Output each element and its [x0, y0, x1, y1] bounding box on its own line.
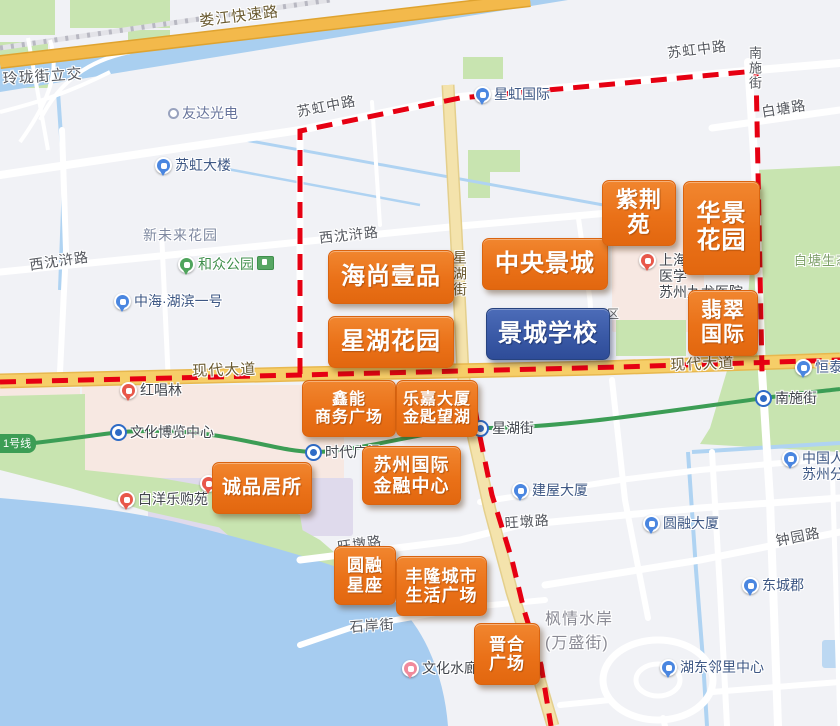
area-label-xinweilai-garden: 新未来花园: [143, 225, 218, 245]
estate-label-text: 诚品居所: [222, 477, 302, 498]
area-label-line2: (万盛街): [545, 629, 613, 653]
school-label-jingcheng-school: 景城学校: [486, 308, 610, 360]
poi-hezhong-park[interactable]: 和众公园: [178, 256, 274, 273]
building-pin-icon: [795, 359, 812, 376]
road-label-shian-street: 石岸街: [349, 614, 395, 637]
estate-label-text2: 生活广场: [406, 586, 478, 605]
metro-station-icon: [305, 444, 322, 461]
poi-hongchanglin[interactable]: 红唱林: [120, 382, 182, 399]
poi-suhong-tower[interactable]: 苏虹大楼: [155, 157, 231, 174]
poi-yuanrong-tower[interactable]: 圆融大厦: [643, 515, 719, 532]
park-badge-icon: [257, 256, 274, 270]
building-pin-icon: [782, 450, 799, 467]
estate-label-text: 苏州国际: [374, 455, 450, 475]
road-label-wangdun-road-east: 旺墩路: [504, 510, 550, 533]
poi-jianwu-tower[interactable]: 建屋大厦: [512, 482, 588, 499]
building-pin-icon: [660, 659, 677, 676]
station-label: 南施街: [775, 390, 817, 406]
estate-label-text2: 金匙望湖: [403, 409, 471, 427]
estate-label-text: 丰隆城市: [406, 567, 478, 586]
poi-label: 建屋大厦: [532, 482, 588, 498]
poi-youda-optoelectronics[interactable]: 友达光电: [168, 105, 238, 121]
metro-station-icon: [755, 390, 772, 407]
poi-label: 红唱林: [140, 382, 182, 398]
poi-china-life-suzhou[interactable]: 中国人寿 苏州分公司: [782, 450, 840, 482]
estate-label-text: 中央景城: [495, 251, 595, 278]
estate-label-text: 海尚壹品: [341, 264, 441, 291]
estate-label-xinghu-garden: 星湖花园: [328, 316, 454, 368]
area-label-line1: 枫情水岸: [545, 605, 613, 629]
estate-label-chengpin-jusuo: 诚品居所: [212, 462, 312, 514]
poi-hengtai[interactable]: 恒泰: [795, 359, 840, 376]
estate-label-text: 圆融: [347, 556, 383, 575]
estate-label-text2: 金融中心: [374, 476, 450, 496]
estate-label-zijing-yuan: 紫荆 苑: [602, 180, 676, 246]
estate-label-text: 晋合: [489, 635, 525, 654]
estate-label-text2: 花园: [697, 228, 747, 255]
estate-label-text2: 国际: [701, 323, 745, 347]
estate-label-xinneng-business-plaza: 鑫能 商务广场: [302, 380, 396, 437]
estate-label-yuanrong-xingzuo: 圆融 星座: [334, 546, 396, 605]
poi-pin-icon: [402, 660, 419, 677]
station-label: 文化博览中心: [130, 424, 214, 440]
poi-station-wenhua-bolan-center[interactable]: 文化博览中心: [110, 424, 214, 441]
estate-label-text: 星湖花园: [341, 329, 441, 356]
estate-label-fenglong-city-life-plaza: 丰隆城市 生活广场: [396, 556, 487, 616]
estate-label-text2: 苑: [627, 213, 650, 238]
building-pin-icon: [643, 515, 660, 532]
estate-label-text2: 广场: [489, 654, 525, 673]
hospital-pin-icon: [639, 252, 656, 269]
estate-label-suzhou-ifc: 苏州国际 金融中心: [362, 446, 461, 505]
poi-label: 苏虹大楼: [175, 157, 231, 173]
poi-hudong-neighborhood-center[interactable]: 湖东邻里中心: [660, 659, 764, 676]
building-pin-icon: [512, 482, 529, 499]
metro-line-badge: 1号线: [0, 434, 36, 453]
poi-dot-icon: [168, 108, 179, 119]
building-pin-icon: [114, 293, 131, 310]
estate-label-text: 翡翠: [701, 299, 745, 323]
park-pin-icon: [178, 256, 195, 273]
estate-label-text: 华景: [697, 201, 747, 228]
area-label-fengqing-shuian: 枫情水岸 (万盛街): [545, 605, 613, 653]
metro-station-icon: [110, 424, 127, 441]
poi-dongchengjun[interactable]: 东城郡: [742, 577, 804, 594]
poi-xinghong-international[interactable]: 星虹国际: [474, 86, 550, 103]
estate-label-text2: 商务广场: [315, 409, 383, 427]
estate-label-text2: 星座: [347, 576, 383, 595]
estate-label-haishang-yipin: 海尚壹品: [328, 250, 454, 304]
estate-label-text: 紫荆: [616, 188, 662, 213]
poi-pin-icon: [118, 491, 135, 508]
poi-station-nanshi-street[interactable]: 南施街: [755, 390, 817, 407]
estate-label-text: 乐嘉大厦: [403, 391, 471, 409]
poi-station-xinghu-street[interactable]: 星湖街: [472, 420, 534, 437]
poi-label: 和众公园: [198, 256, 274, 272]
poi-label-line2: 苏州分公司: [802, 466, 840, 482]
poi-label: 友达光电: [182, 105, 238, 121]
building-pin-icon: [474, 86, 491, 103]
estate-label-zhongyang-jingcheng: 中央景城: [482, 238, 608, 290]
estate-label-text: 鑫能: [332, 391, 366, 409]
poi-pin-icon: [120, 382, 137, 399]
poi-label: 文化水廊: [422, 660, 478, 676]
map-canvas[interactable]: 娄江快速路 玲珑街立交 苏虹中路 苏虹中路 南施街 白塘路 西沈浒路 西沈浒路 …: [0, 0, 840, 726]
building-pin-icon: [155, 157, 172, 174]
road-label-xiandai-avenue-west: 现代大道: [192, 358, 257, 381]
poi-baiyang-legou-yuan[interactable]: 白洋乐购苑: [118, 491, 208, 508]
road-label-nanshi-street: 南施街: [745, 46, 764, 91]
poi-label: 白洋乐购苑: [138, 491, 208, 507]
estate-label-feicui-international: 翡翠 国际: [688, 290, 758, 356]
station-label: 星湖街: [492, 420, 534, 436]
poi-label: 星虹国际: [494, 86, 550, 102]
estate-label-lejia-tower-jinshi-wanghu: 乐嘉大厦 金匙望湖: [396, 380, 478, 437]
school-label-text: 景城学校: [498, 321, 598, 348]
poi-label: 恒泰: [815, 359, 840, 375]
estate-label-huajing-garden: 华景 花园: [683, 181, 760, 275]
area-label-baitang-eco-park: 白塘生态园: [794, 250, 840, 269]
poi-label: 湖东邻里中心: [680, 659, 764, 675]
poi-label: 圆融大厦: [663, 515, 719, 531]
poi-label-text: 和众公园: [198, 256, 254, 272]
poi-label: 中国人寿 苏州分公司: [802, 450, 840, 482]
poi-label-line1: 中国人寿: [802, 450, 840, 466]
estate-label-jinhe-plaza: 晋合 广场: [474, 623, 540, 685]
poi-wenhua-shuilang[interactable]: 文化水廊: [402, 660, 478, 677]
poi-label: 东城郡: [762, 577, 804, 593]
building-pin-icon: [742, 577, 759, 594]
poi-zhonghai-hubin-no1[interactable]: 中海·湖滨一号: [114, 293, 223, 310]
poi-label: 中海·湖滨一号: [134, 293, 223, 309]
